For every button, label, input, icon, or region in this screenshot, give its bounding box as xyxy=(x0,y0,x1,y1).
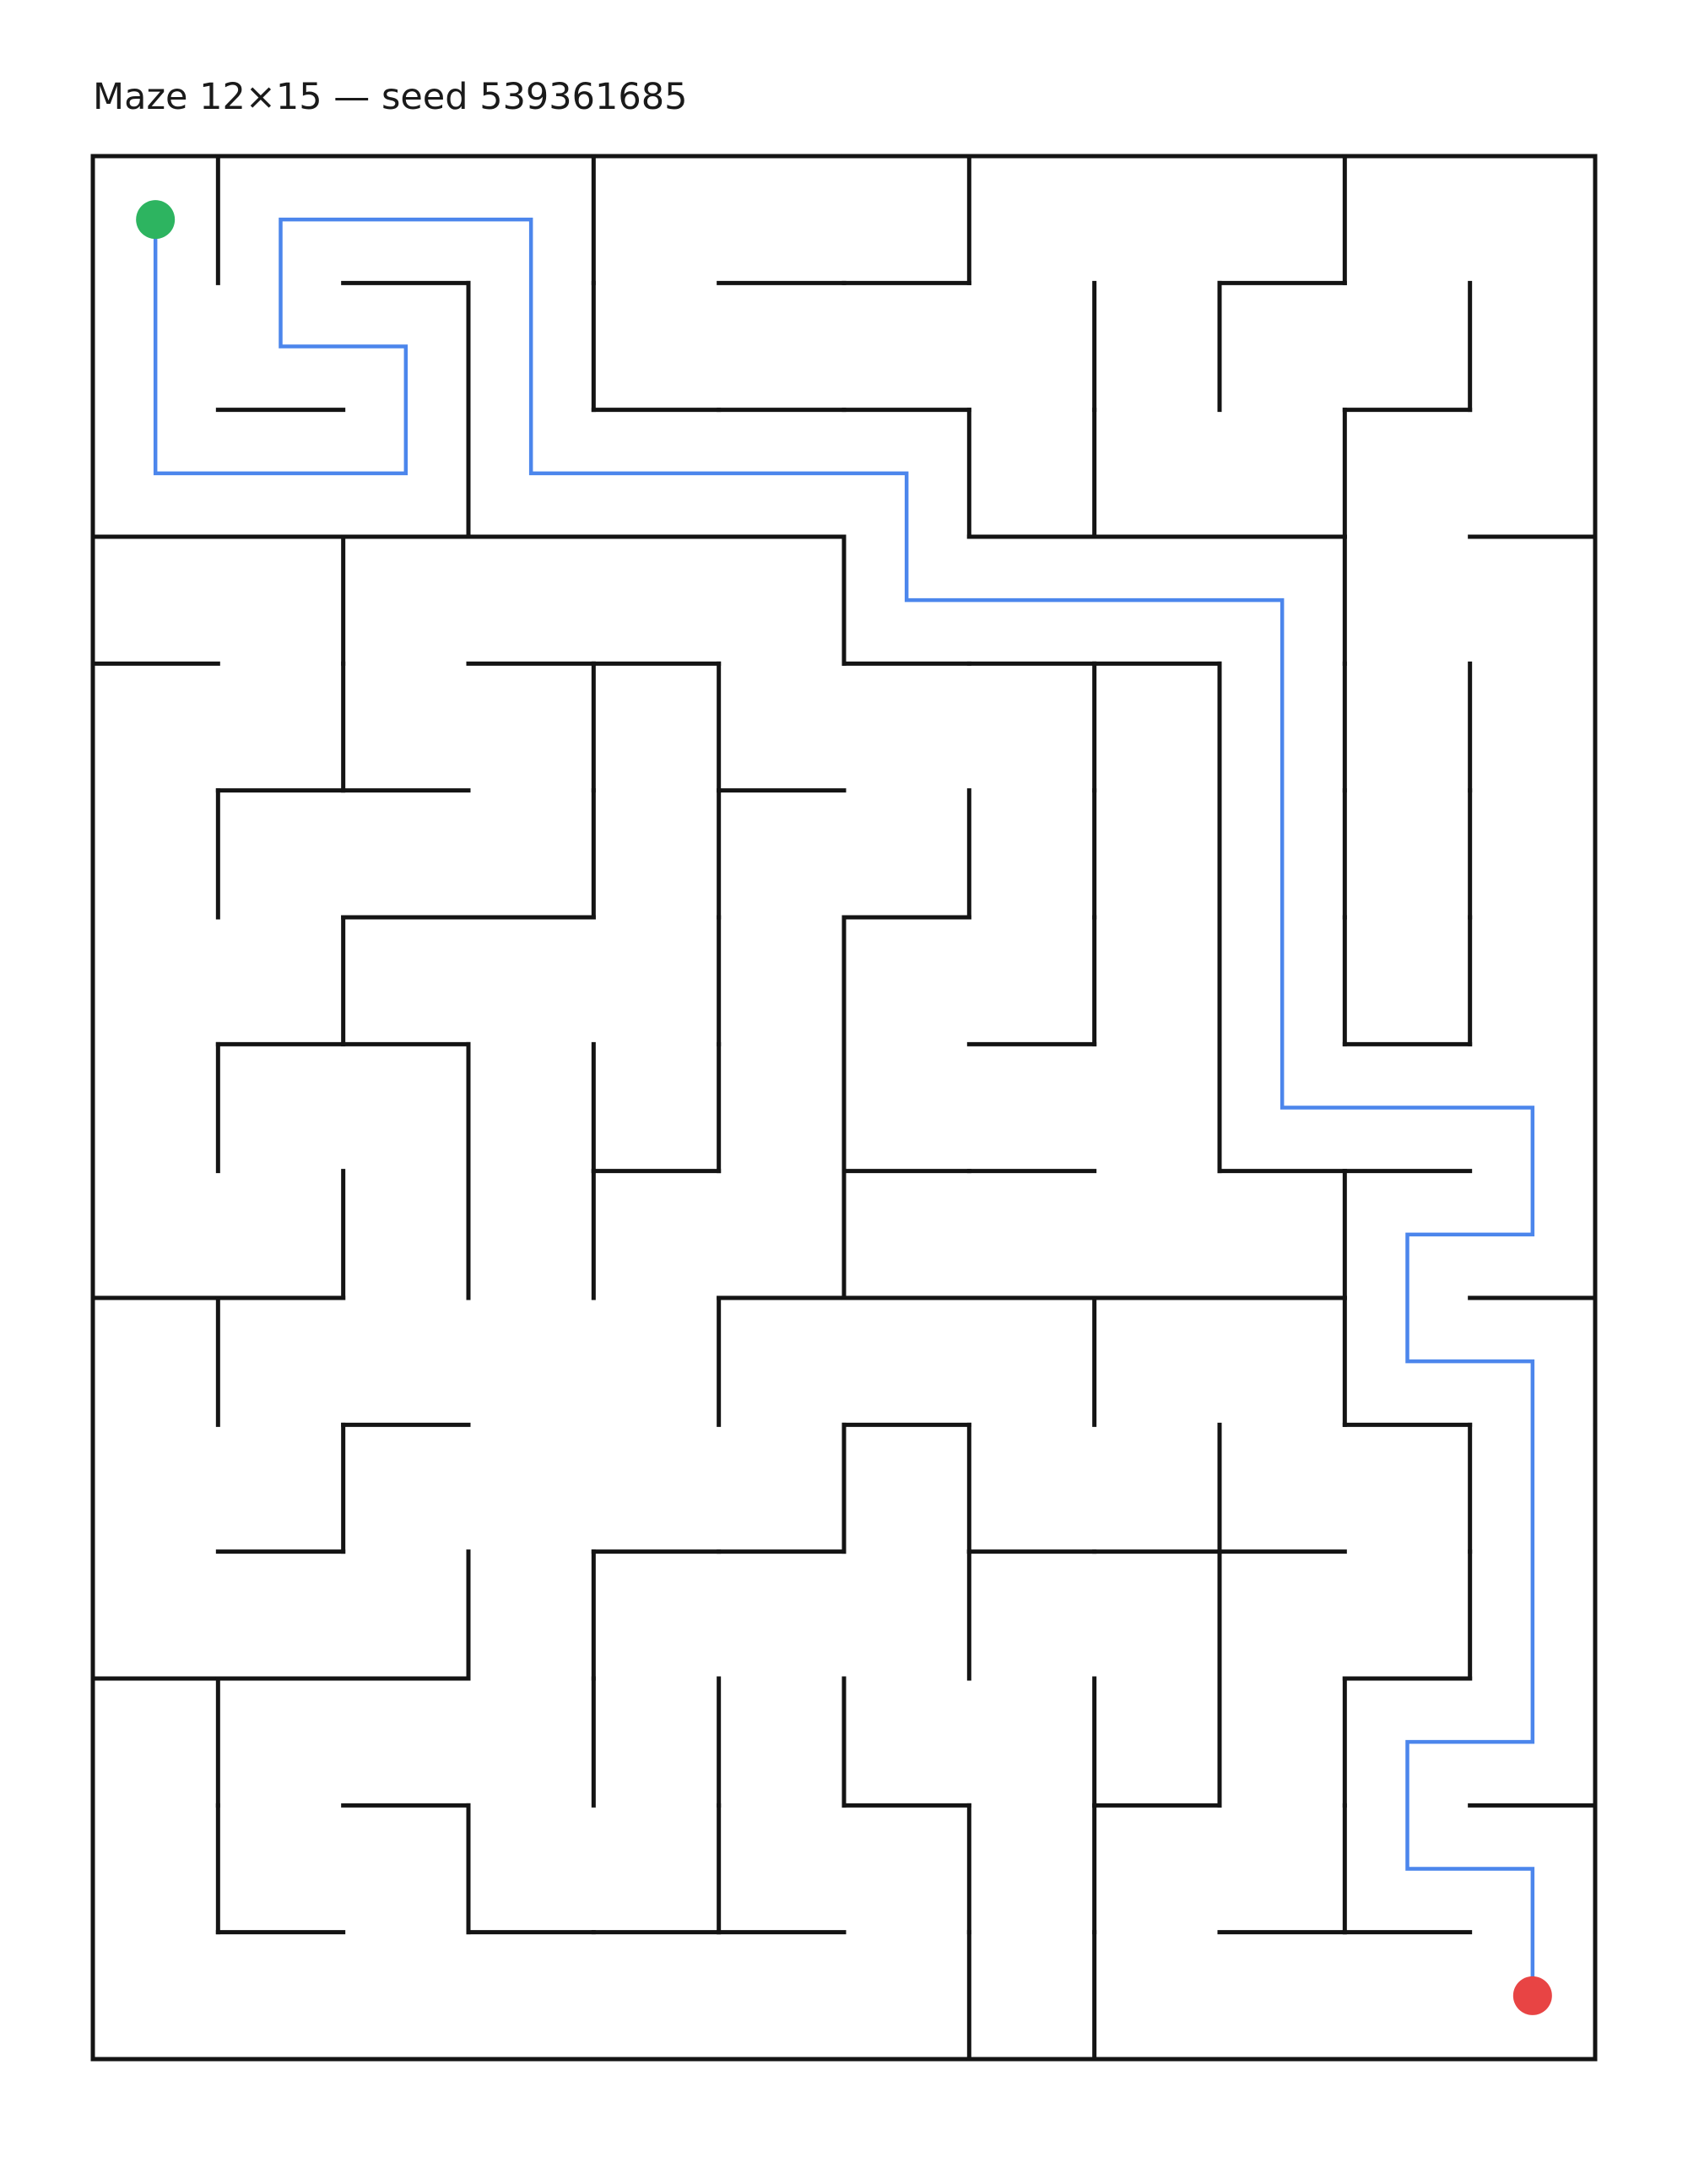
end-dot xyxy=(1513,1976,1552,2015)
start-dot xyxy=(136,200,175,239)
maze-page: Maze 12×15 — seed 539361685 xyxy=(0,0,1688,2184)
maze-figure xyxy=(0,0,1688,2184)
